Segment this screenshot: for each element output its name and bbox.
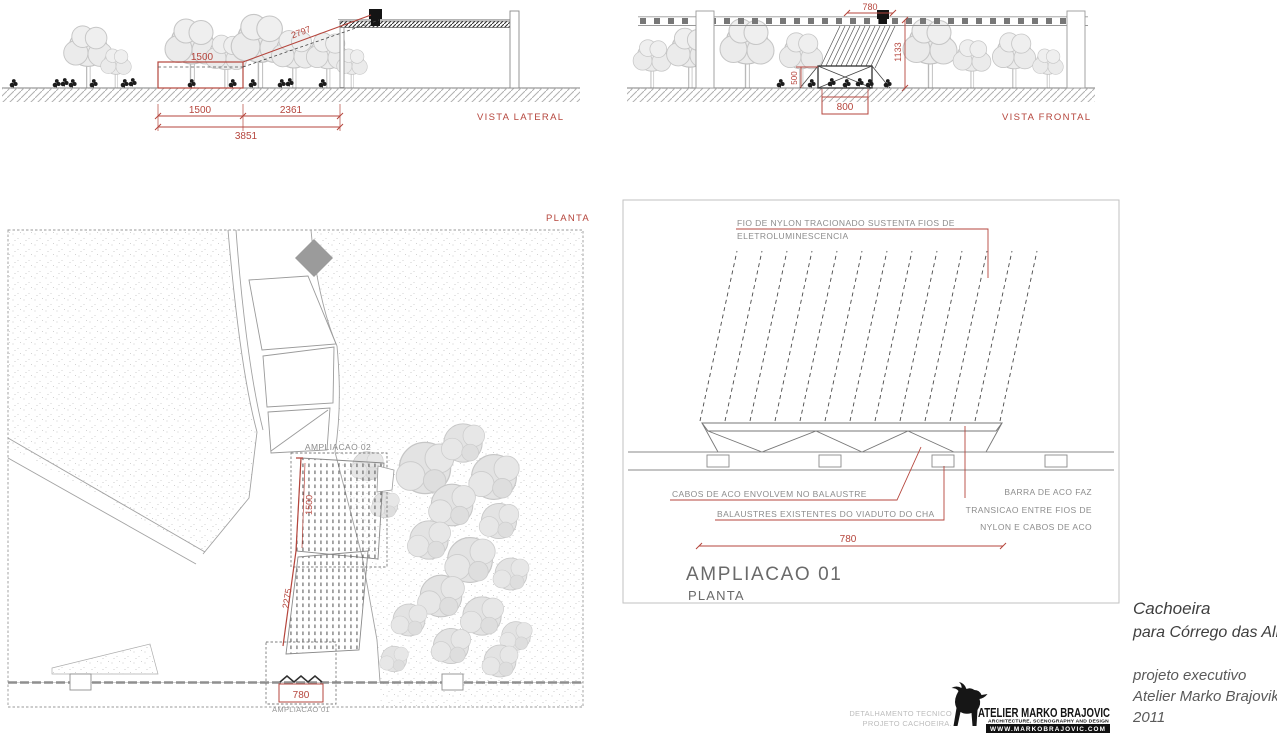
detail-panel: FIO DE NYLON TRACIONADO SUSTENTA FIOS DE… [623,200,1119,603]
dim-frontal-height: 1133 [893,42,903,61]
planta-view: PLANTA [8,213,590,714]
annotation-barra-3: NYLON E CABOS DE ACO [980,522,1092,532]
dim-bottom-left: 1500 [189,105,212,116]
annotation-barra-1: BARRA DE ACO FAZ [1004,487,1092,497]
vista-lateral-label: VISTA LATERAL [477,112,564,123]
vista-lateral-view: 1500 2797 1500 2361 3851 VISTA LATERAL [2,9,580,142]
technical-drawing: 1500 2797 1500 2361 3851 VISTA LATERAL [0,0,1277,733]
title-block: Cachoeira para Córrego das Almas projeto… [849,599,1277,733]
annotation-nylon-1: FIO DE NYLON TRACIONADO SUSTENTA FIOS DE [737,218,955,228]
detail-border [623,200,1119,603]
waterfall-screen-frontal [820,26,895,68]
dim-frontal-top: 780 [862,2,877,12]
stipple-bottom-left [52,644,158,674]
ampliacao-01-label: AMPLIACAO 01 [272,705,330,714]
dim-planta-deck: 1500 [304,495,315,515]
project-title-2: para Córrego das Almas [1132,624,1277,641]
lateral-trees [64,14,368,88]
logo-tagline: ARCHITECTURE, SCENOGRAPHY AND DESIGN [988,719,1110,724]
planta-label: PLANTA [546,213,590,224]
dim-screen-height: 500 [790,71,799,85]
annotation-cabos: CABOS DE ACO ENVOLVEM NO BALAUSTRE [672,489,867,499]
dim-bottom-total: 3851 [235,131,258,142]
lateral-shrubs [10,78,327,87]
studio-logo: ATELIER MARKO BRAJOVIC ARCHITECTURE, SCE… [952,682,1111,733]
logo-site: WWW.MARKOBRAJOVIC.COM [990,727,1106,733]
dim-planta-width: 780 [293,690,310,701]
ground-lateral [2,88,580,102]
viaduct-deck-lateral [338,11,519,88]
project-phase: projeto executivo [1132,667,1246,684]
dim-bottom-right: 2361 [280,105,303,116]
ramp-area: 2275 [281,551,368,654]
sheet-label-1: DETALHAMENTO TECNICO [849,709,952,718]
annotation-balaustres: BALAUSTRES EXISTENTES DO VIADUTO DO CHA [717,509,935,519]
studio-name: Atelier Marko Brajovik [1132,688,1277,705]
dim-detail-width: 780 [840,534,857,545]
project-title-1: Cachoeira [1133,599,1211,618]
dim-frontal-base: 800 [837,102,854,113]
ampliacao-02-label: AMPLIACAO 02 [305,442,371,452]
dim-top-width: 1500 [191,52,214,63]
vista-frontal-view: 780 1133 500 800 VISTA FRONTAL [627,2,1095,123]
annotation-nylon-2: ELETROLUMINESCENCIA [737,231,849,241]
stipple-left [8,230,257,554]
vista-frontal-label: VISTA FRONTAL [1002,112,1091,123]
drawing-sheet: 1500 2797 1500 2361 3851 VISTA LATERAL [0,0,1277,733]
detail-subtitle: PLANTA [688,588,745,603]
project-year: 2011 [1132,709,1165,726]
annotation-barra-2: TRANSICAO ENTRE FIOS DE [966,505,1092,515]
detail-title: AMPLIACAO 01 [686,564,842,585]
ground-frontal [627,88,1095,102]
sheet-label-2: PROJETO CACHOEIRA. [863,719,952,728]
